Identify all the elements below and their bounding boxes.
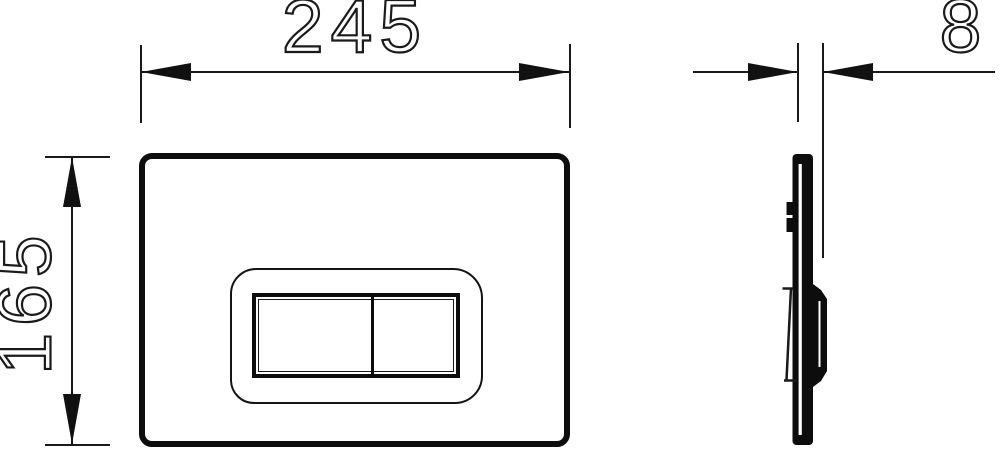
- large-flush-button: [256, 297, 371, 374]
- arrowhead-down-icon: [63, 394, 81, 444]
- arrowhead-right-icon: [519, 63, 569, 81]
- small-flush-button: [374, 297, 456, 374]
- side-view: [778, 145, 840, 451]
- arrowhead-left-icon: [141, 63, 191, 81]
- dimension-depth-value: 8: [900, 0, 1000, 64]
- arrowhead-left-icon: [823, 63, 873, 81]
- button-housing-gap: [819, 301, 821, 367]
- mounting-clip-top: [787, 202, 797, 215]
- side-profile-body: [793, 154, 814, 445]
- dimension-height-value: 165: [0, 177, 63, 427]
- arrowhead-up-icon: [63, 157, 81, 207]
- button-frame: [252, 293, 460, 378]
- technical-drawing-canvas: 245 165 8: [0, 0, 1000, 451]
- arrowhead-right-icon: [748, 63, 798, 81]
- side-profile-gap: [799, 164, 802, 435]
- dimension-width-extension-line-right: [569, 44, 571, 128]
- rear-bracket-line: [787, 288, 792, 380]
- dimension-width-value: 245: [230, 0, 480, 64]
- dimension-width-line: [141, 71, 569, 73]
- dimension-depth-extension-line-left: [797, 43, 799, 122]
- mounting-clip-bottom: [787, 218, 797, 232]
- dimension-width-extension-line-left: [140, 45, 142, 123]
